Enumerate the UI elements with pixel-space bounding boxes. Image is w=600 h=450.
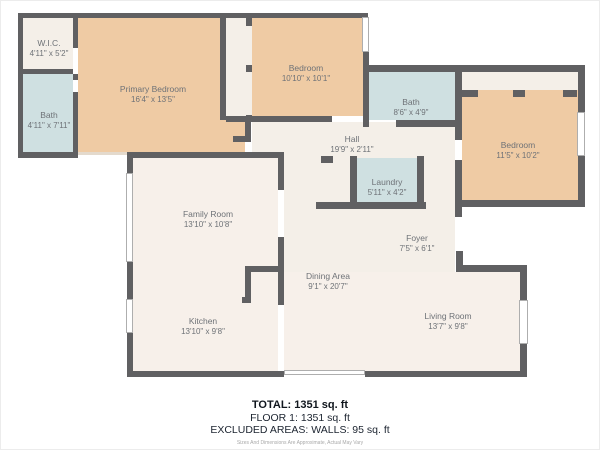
window <box>577 112 585 156</box>
window <box>519 300 528 344</box>
room-name: W.I.C. <box>30 38 69 49</box>
wall-segment <box>455 160 462 217</box>
wall-segment <box>396 120 462 127</box>
room-name: Primary Bedroom <box>120 84 186 95</box>
wall-segment <box>455 200 585 207</box>
room-dims: 13'7" x 9'8" <box>424 322 471 332</box>
summary-disclaimer: Sizes And Dimensions Are Approximate, Ac… <box>0 440 600 446</box>
room-label-wic: W.I.C. 4'11" x 5'2" <box>30 38 69 59</box>
wall-segment <box>316 202 426 209</box>
hall-fill-left <box>252 122 284 152</box>
sliding-door <box>284 370 365 375</box>
wall-segment <box>417 156 424 203</box>
wall-segment <box>220 13 226 120</box>
room-name: Hall <box>330 134 373 145</box>
wall-segment <box>73 74 78 80</box>
room-label-bath2: Bath 8'6" x 4'9" <box>394 97 429 118</box>
closet-fill-bedroom3 <box>462 72 578 90</box>
wall-segment <box>278 152 284 190</box>
room-dims: 8'6" x 4'9" <box>394 108 429 118</box>
room-label-bath-main: Bath 4'11" x 7'11" <box>28 110 71 131</box>
wall-segment <box>127 152 284 158</box>
room-dims: 4'11" x 7'11" <box>28 121 71 131</box>
room-name: Kitchen <box>181 316 225 327</box>
room-label-foyer: Foyer 7'5" x 6'1" <box>400 233 435 254</box>
room-label-laundry: Laundry 5'11" x 4'2" <box>368 177 407 198</box>
summary-floor: FLOOR 1: 1351 sq. ft <box>0 412 600 424</box>
room-label-dining-area: Dining Area 9'1" x 20'7" <box>306 271 350 292</box>
wall-segment <box>127 262 133 299</box>
floorplan-canvas: W.I.C. 4'11" x 5'2" Bath 4'11" x 7'11" P… <box>0 0 600 450</box>
wall-segment <box>242 297 251 303</box>
closet-tick <box>246 18 252 26</box>
exterior-edge <box>78 152 133 155</box>
closet-tick <box>513 90 525 97</box>
wall-segment <box>455 65 462 140</box>
room-label-kitchen: Kitchen 13'10" x 9'8" <box>181 316 225 337</box>
wall-segment <box>18 13 368 18</box>
closet-tick <box>563 90 577 97</box>
room-name: Living Room <box>424 311 471 322</box>
room-name: Foyer <box>400 233 435 244</box>
window <box>126 299 133 333</box>
window <box>126 173 133 262</box>
room-name: Dining Area <box>306 271 350 282</box>
window <box>362 17 369 52</box>
wall-segment <box>127 371 284 377</box>
room-dims: 11'5" x 10'2" <box>496 151 539 161</box>
room-dims: 9'1" x 20'7" <box>306 282 350 292</box>
room-label-bedroom2: Bedroom 10'10" x 10'1" <box>282 63 330 84</box>
room-name: Bath <box>394 97 429 108</box>
wall-segment <box>18 152 78 158</box>
wall-segment <box>363 65 585 72</box>
room-name: Bath <box>28 110 71 121</box>
room-dims: 13'10" x 10'8" <box>183 220 233 230</box>
wall-segment <box>456 265 527 272</box>
closet-tick <box>246 65 252 72</box>
wall-segment <box>321 156 333 163</box>
wall-segment <box>18 13 23 158</box>
wall-segment <box>127 152 133 173</box>
room-name: Bedroom <box>496 140 539 151</box>
wall-segment <box>350 156 357 203</box>
room-label-primary-bedroom: Primary Bedroom 16'4" x 13'5" <box>120 84 186 105</box>
room-label-bedroom3: Bedroom 11'5" x 10'2" <box>496 140 539 161</box>
room-dims: 13'10" x 9'8" <box>181 327 225 337</box>
wall-segment <box>226 116 332 122</box>
room-label-family-room: Family Room 13'10" x 10'8" <box>183 209 233 230</box>
wall-segment <box>73 13 78 48</box>
room-dims: 10'10" x 10'1" <box>282 74 330 84</box>
room-dims: 16'4" x 13'5" <box>120 95 186 105</box>
closet-tick <box>462 90 478 97</box>
wall-segment <box>363 51 369 127</box>
summary-total: TOTAL: 1351 sq. ft <box>0 399 600 412</box>
room-dims: 5'11" x 4'2" <box>368 188 407 198</box>
room-name: Laundry <box>368 177 407 188</box>
wall-segment <box>23 69 73 74</box>
area-summary: TOTAL: 1351 sq. ft FLOOR 1: 1351 sq. ft … <box>0 399 600 446</box>
wall-segment <box>365 371 527 377</box>
wall-segment <box>233 136 251 142</box>
summary-excluded: EXCLUDED AREAS: WALLS: 95 sq. ft <box>0 424 600 436</box>
room-label-hall: Hall 19'9" x 2'11" <box>330 134 373 155</box>
room-label-living-room: Living Room 13'7" x 9'8" <box>424 311 471 332</box>
wall-segment <box>73 92 78 152</box>
room-dims: 19'9" x 2'11" <box>330 145 373 155</box>
room-dims: 7'5" x 6'1" <box>400 244 435 254</box>
room-dims: 4'11" x 5'2" <box>30 49 69 59</box>
room-fill-family-kitchen <box>133 158 278 371</box>
room-name: Bedroom <box>282 63 330 74</box>
room-name: Family Room <box>183 209 233 220</box>
